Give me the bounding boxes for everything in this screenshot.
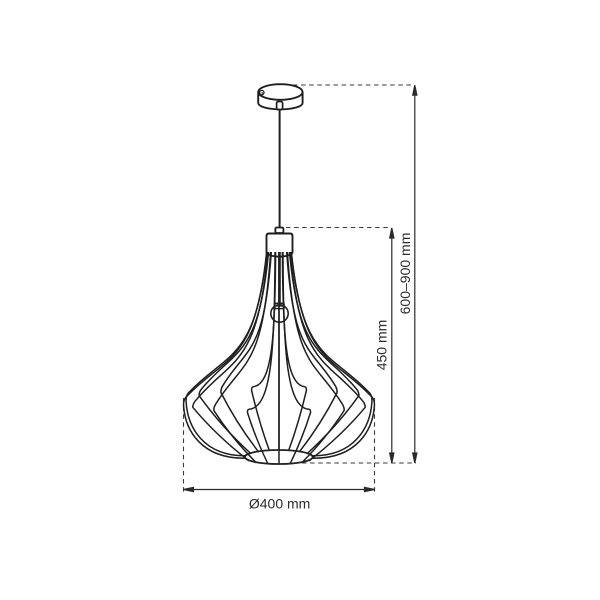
- svg-text:600–900 mm: 600–900 mm: [397, 233, 413, 315]
- svg-text:450 mm: 450 mm: [374, 320, 390, 371]
- svg-text:Ø400 mm: Ø400 mm: [249, 496, 310, 512]
